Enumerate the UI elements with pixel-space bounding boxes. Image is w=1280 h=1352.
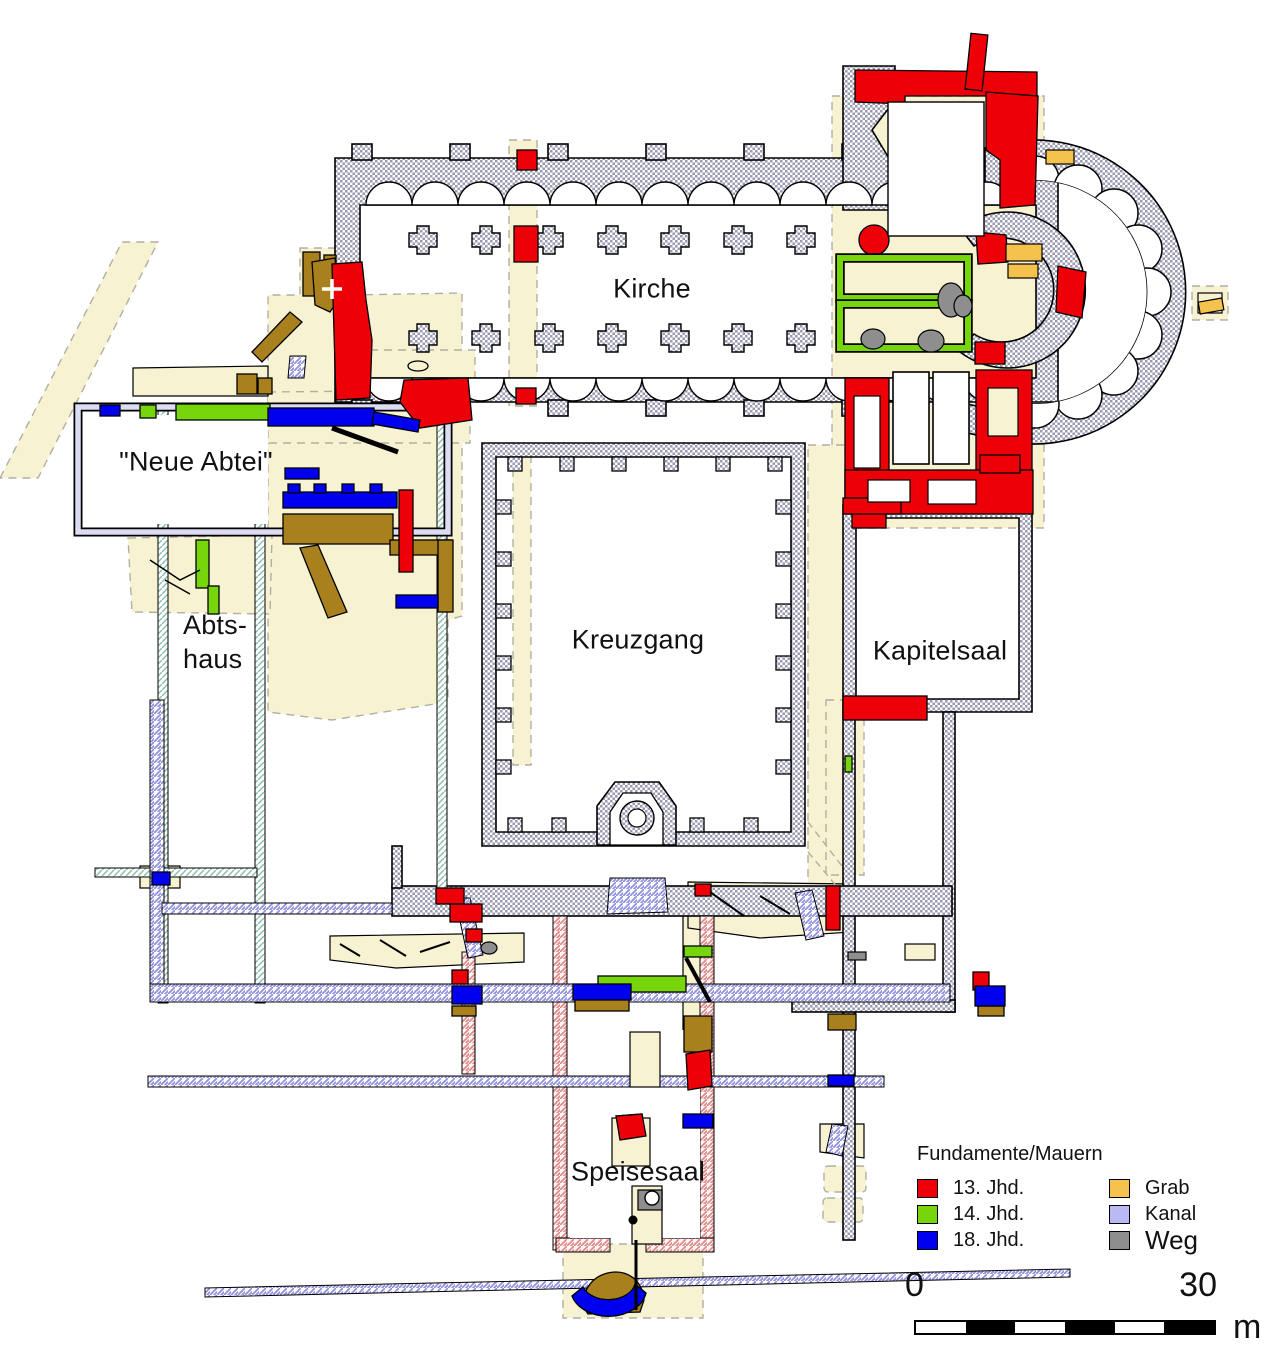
label-abtshaus-line1: Abts-	[183, 608, 247, 642]
label-kirche: Kirche	[613, 274, 691, 305]
legend-item-grab: Grab	[1109, 1177, 1280, 1200]
label-kreuzgang: Kreuzgang	[572, 625, 704, 656]
fountain-house	[610, 793, 663, 845]
legend-swatch-weg	[1109, 1231, 1130, 1250]
legend-label-kanal: Kanal	[1145, 1203, 1196, 1226]
legend-swatch-18jhd	[917, 1231, 938, 1250]
legend-item-kanal: Kanal	[1109, 1203, 1280, 1226]
label-abtshaus-line2: haus	[183, 642, 247, 676]
scale-unit-label: m	[1233, 1310, 1261, 1344]
scale-min-label: 0	[905, 1266, 924, 1310]
legend-column-centuries: 13. Jhd. 14. Jhd. 18. Jhd.	[917, 1177, 1093, 1252]
monastery-excavation-plan: Kirche "Neue Abtei" Abts- haus Kreuzgang…	[0, 0, 1280, 1352]
legend-title: Fundamente/Mauern	[905, 1143, 1280, 1166]
legend-label-18jhd: 18. Jhd.	[953, 1229, 1024, 1252]
label-neue-abtei: "Neue Abtei"	[119, 447, 273, 478]
legend-item-18jhd: 18. Jhd.	[917, 1229, 1093, 1252]
church-pillars	[409, 226, 815, 352]
legend: Fundamente/Mauern 13. Jhd. 14. Jhd. 18. …	[905, 1143, 1280, 1252]
legend-item-13jhd: 13. Jhd.	[917, 1177, 1093, 1200]
legend-swatch-14jhd	[917, 1205, 938, 1224]
legend-swatch-kanal	[1109, 1205, 1130, 1224]
speisesaal-red-fragment	[616, 1114, 646, 1140]
legend-item-weg: Weg	[1109, 1229, 1280, 1252]
legend-item-14jhd: 14. Jhd.	[917, 1203, 1093, 1226]
scale-max-label: 30	[1179, 1266, 1217, 1310]
legend-label-14jhd: 14. Jhd.	[953, 1203, 1024, 1226]
legend-swatch-grab	[1109, 1179, 1130, 1198]
legend-swatch-13jhd	[917, 1179, 938, 1198]
label-kapitelsaal: Kapitelsaal	[873, 636, 1007, 667]
label-speisesaal: Speisesaal	[571, 1157, 705, 1188]
legend-column-features: Grab Kanal Weg	[1109, 1177, 1280, 1252]
legend-label-weg: Weg	[1145, 1225, 1198, 1256]
scale-bar-segments	[914, 1320, 1216, 1335]
speisesaal-ring	[645, 1191, 659, 1205]
legend-label-grab: Grab	[1145, 1177, 1189, 1200]
legend-label-13jhd: 13. Jhd.	[953, 1177, 1024, 1200]
label-abtshaus: Abts- haus	[183, 608, 247, 676]
scale-bar: 0 30 m	[905, 1266, 1265, 1344]
